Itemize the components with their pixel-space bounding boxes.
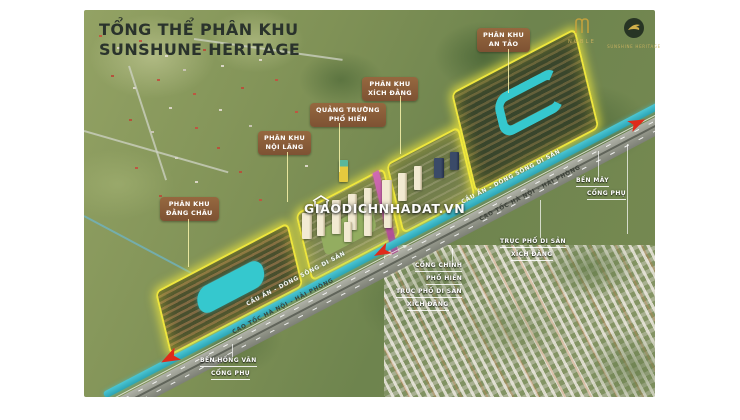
poi-label-text: BẾN MÂY — [576, 177, 609, 187]
phoenix-emblem-icon — [623, 24, 645, 43]
tower-block — [364, 216, 372, 236]
title-line-2: SUNSHUNE HERITAGE — [99, 40, 300, 60]
poi-label-ben-hong-van: BẾN HỒNG VÂN CỔNG PHỤ — [200, 357, 257, 383]
poi-label-text: CỔNG CHÍNH — [415, 262, 462, 272]
leader-line-white — [598, 151, 599, 177]
dang-chau-lagoon — [195, 257, 267, 317]
page-title: TỔNG THỂ PHÂN KHU SUNSHUNE HERITAGE — [99, 20, 300, 59]
noble-logo: NOBLE — [556, 15, 608, 45]
poi-label-text: CỔNG PHỤ — [211, 370, 250, 380]
zone-label-xich-dang: PHÂN KHU XÍCH ĐẰNG — [362, 77, 418, 101]
an-tao-lagoon — [492, 65, 566, 140]
poi-label-text: TRỤC PHỐ DI SẢN — [396, 288, 462, 298]
poi-label-ben-may: BẾN MÂY CỔNG PHỤ — [576, 177, 626, 203]
zone-label-dang-chau: PHÂN KHU ĐẰNG CHÂU — [160, 197, 219, 221]
noble-logo-text: NOBLE — [556, 39, 608, 45]
zone-label-text: PHỐ HIẾN — [316, 115, 380, 124]
leader-line-white — [452, 248, 453, 262]
poi-label-text: XÍCH ĐẰNG — [407, 301, 449, 311]
zone-label-text: AN TẢO — [483, 40, 524, 49]
leader-line-white — [540, 200, 541, 238]
poi-label-heritage-street-right: TRỤC PHỐ DI SẢN XÍCH ĐẰNG — [500, 238, 566, 264]
tower-block — [344, 222, 352, 242]
zone-label-text: PHÂN KHU — [166, 200, 213, 209]
tower-block — [414, 166, 422, 190]
zone-label-quang-truong-pho-hien: QUẢNG TRƯỜNG PHỐ HIẾN — [310, 103, 386, 127]
gate-monogram-icon — [570, 19, 594, 38]
sunshine-heritage-logo: SUNSHINE HERITAGE — [606, 17, 662, 49]
plaza-landmark-tower — [339, 160, 348, 182]
poi-label-heritage-street-center: TRỤC PHỐ DI SẢN XÍCH ĐẰNG — [396, 288, 462, 314]
leader-line-white — [627, 144, 628, 234]
masterplan-screenshot: TỔNG THỂ PHÂN KHU SUNSHUNE HERITAGE PHÂN… — [0, 0, 740, 420]
leader-line — [287, 152, 288, 202]
leader-line-white — [232, 344, 233, 357]
leader-line — [188, 219, 189, 267]
zone-label-text: QUẢNG TRƯỜNG — [316, 106, 380, 115]
tower-block — [302, 213, 312, 239]
zone-label-text: ĐẰNG CHÂU — [166, 209, 213, 218]
watermark-text: GIAODICHNHADAT.VN — [304, 201, 465, 216]
zone-label-noi-lang: PHÂN KHU NỘI LĂNG — [258, 131, 311, 155]
poi-label-text: PHỐ HIẾN — [426, 275, 462, 285]
leader-line — [339, 123, 340, 172]
poi-label-text: BẾN HỒNG VÂN — [200, 357, 257, 367]
zone-label-text: PHÂN KHU — [264, 134, 305, 143]
sunshine-heritage-logo-text: SUNSHINE HERITAGE — [606, 44, 662, 49]
leader-line — [400, 96, 401, 154]
zone-label-text: NỘI LĂNG — [264, 143, 305, 152]
tower-block-dark — [434, 158, 444, 178]
poi-label-cong-chinh: CỔNG CHÍNH PHỐ HIẾN — [415, 262, 462, 288]
country-road — [128, 66, 167, 181]
zone-label-text: PHÂN KHU — [483, 31, 524, 40]
poi-label-text: CỔNG PHỤ — [587, 190, 626, 200]
zone-label-text: PHÂN KHU — [368, 80, 412, 89]
poi-label-text: XÍCH ĐẰNG — [511, 251, 553, 261]
tower-block-dark — [450, 152, 459, 170]
zone-label-text: XÍCH ĐẰNG — [368, 89, 412, 98]
title-line-1: TỔNG THỂ PHÂN KHU — [99, 20, 300, 40]
zone-label-an-tao: PHÂN KHU AN TẢO — [477, 28, 530, 52]
tower-block — [398, 173, 407, 201]
poi-label-text: TRỤC PHỐ DI SẢN — [500, 238, 566, 248]
leader-line — [508, 49, 509, 93]
